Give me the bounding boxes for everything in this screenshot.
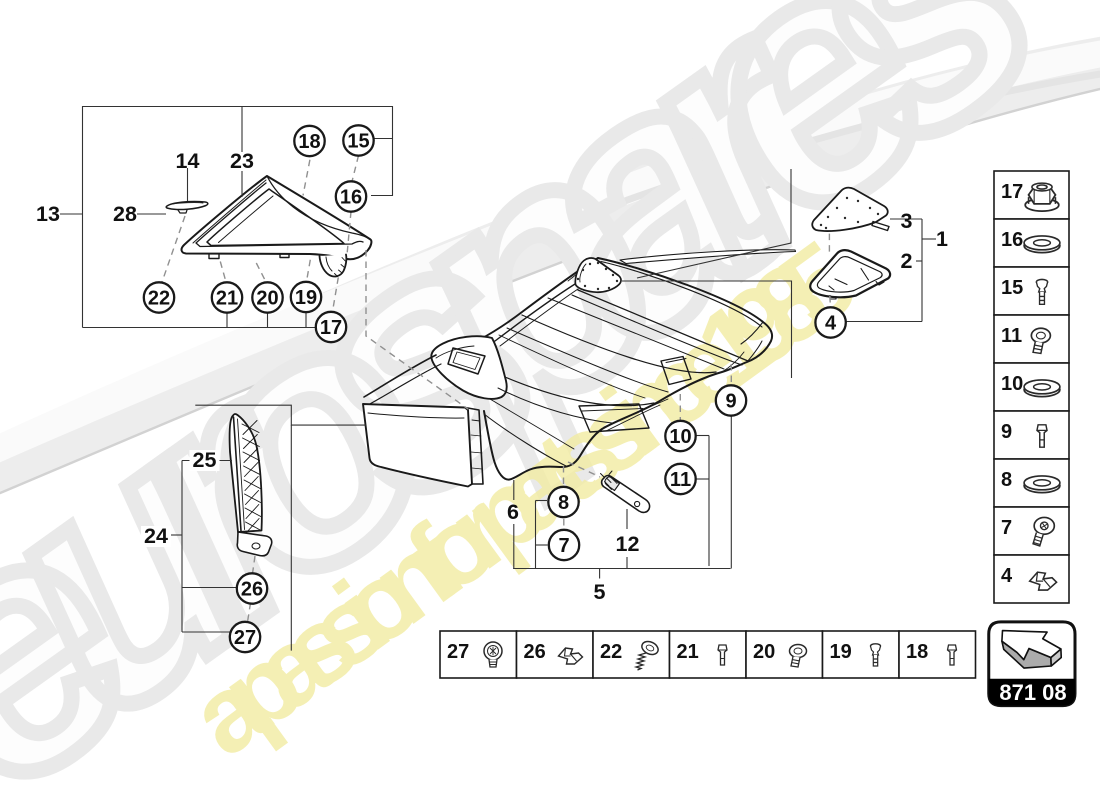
svg-text:27: 27 bbox=[234, 627, 256, 649]
svg-text:4: 4 bbox=[825, 313, 837, 335]
svg-text:19: 19 bbox=[830, 641, 852, 663]
svg-text:24: 24 bbox=[144, 524, 168, 548]
svg-text:6: 6 bbox=[507, 500, 519, 524]
svg-text:8: 8 bbox=[1001, 469, 1012, 491]
svg-text:1: 1 bbox=[936, 227, 948, 251]
svg-text:15: 15 bbox=[347, 131, 369, 153]
svg-text:26: 26 bbox=[241, 579, 263, 601]
svg-text:17: 17 bbox=[1001, 181, 1023, 203]
svg-text:11: 11 bbox=[670, 469, 691, 491]
svg-text:25: 25 bbox=[193, 448, 217, 472]
svg-text:871 08: 871 08 bbox=[999, 680, 1066, 705]
svg-text:10: 10 bbox=[669, 426, 691, 448]
svg-text:21: 21 bbox=[677, 641, 699, 663]
svg-text:7: 7 bbox=[1001, 517, 1012, 539]
svg-text:eurospares: eurospares bbox=[0, 0, 1097, 800]
svg-text:27: 27 bbox=[447, 641, 469, 663]
svg-text:16: 16 bbox=[340, 187, 362, 209]
svg-text:18: 18 bbox=[298, 131, 320, 153]
svg-text:16: 16 bbox=[1001, 229, 1023, 251]
svg-text:22: 22 bbox=[600, 641, 622, 663]
svg-text:21: 21 bbox=[216, 288, 238, 310]
svg-text:18: 18 bbox=[906, 641, 928, 663]
svg-text:26: 26 bbox=[524, 641, 546, 663]
svg-text:2: 2 bbox=[901, 249, 913, 273]
svg-text:9: 9 bbox=[725, 391, 736, 413]
svg-text:8: 8 bbox=[558, 492, 569, 514]
svg-text:3: 3 bbox=[901, 209, 913, 233]
svg-text:12: 12 bbox=[616, 532, 640, 556]
svg-text:19: 19 bbox=[295, 287, 317, 309]
svg-text:5: 5 bbox=[594, 580, 606, 604]
svg-text:22: 22 bbox=[148, 288, 170, 310]
svg-text:10: 10 bbox=[1001, 373, 1023, 395]
svg-text:28: 28 bbox=[113, 202, 137, 226]
svg-text:7: 7 bbox=[558, 535, 569, 557]
svg-text:9: 9 bbox=[1001, 421, 1012, 443]
svg-text:15: 15 bbox=[1001, 277, 1023, 299]
svg-text:20: 20 bbox=[256, 288, 278, 310]
svg-text:14: 14 bbox=[176, 149, 200, 173]
svg-text:4: 4 bbox=[1001, 565, 1013, 587]
svg-text:11: 11 bbox=[1001, 325, 1022, 347]
svg-text:13: 13 bbox=[36, 202, 60, 226]
svg-text:23: 23 bbox=[230, 149, 254, 173]
svg-text:17: 17 bbox=[320, 317, 342, 339]
svg-text:20: 20 bbox=[753, 641, 775, 663]
